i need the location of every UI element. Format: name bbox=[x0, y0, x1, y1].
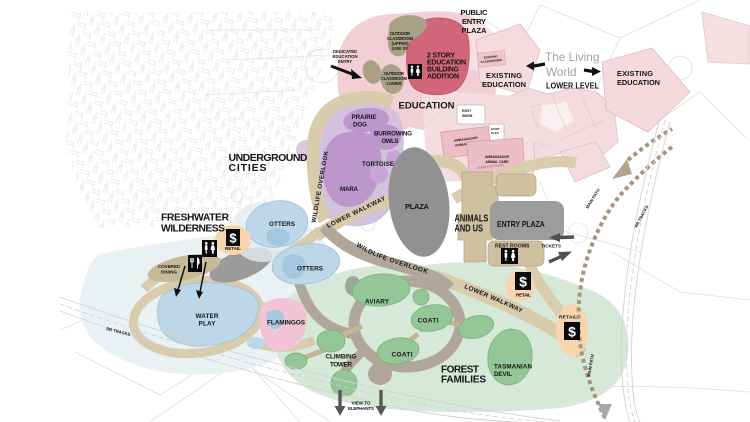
svg-text:DOG: DOG bbox=[353, 122, 367, 129]
svg-text:2000 SF: 2000 SF bbox=[392, 46, 408, 51]
svg-text:PUBLIC: PUBLIC bbox=[461, 8, 489, 17]
svg-text:RETAIL: RETAIL bbox=[225, 246, 241, 252]
svg-text:CLIMBING: CLIMBING bbox=[326, 354, 357, 361]
svg-text:WKRM: WKRM bbox=[462, 114, 473, 118]
svg-text:PRAIRIE: PRAIRIE bbox=[352, 114, 377, 121]
svg-text:PLAY: PLAY bbox=[199, 321, 217, 328]
svg-text:OTTERS: OTTERS bbox=[297, 266, 324, 273]
svg-text:DEVIL: DEVIL bbox=[494, 371, 512, 378]
svg-text:$: $ bbox=[568, 324, 576, 340]
svg-text:BUILDING: BUILDING bbox=[427, 67, 460, 74]
svg-text:MARA: MARA bbox=[340, 186, 359, 193]
svg-text:FRESHWATER: FRESHWATER bbox=[161, 213, 230, 224]
svg-text:COVERED: COVERED bbox=[158, 264, 181, 269]
svg-text:FLAMINGOS: FLAMINGOS bbox=[267, 320, 306, 327]
svg-text:ELEPHANTS: ELEPHANTS bbox=[348, 406, 374, 411]
svg-text:RETAIL: RETAIL bbox=[516, 293, 531, 299]
svg-text:DINING: DINING bbox=[161, 270, 177, 275]
svg-text:EXISTING: EXISTING bbox=[486, 71, 522, 80]
svg-text:TICKETS: TICKETS bbox=[541, 244, 561, 249]
svg-text:ENTRY PLAZA: ENTRY PLAZA bbox=[497, 219, 545, 229]
svg-text:ENTRY: ENTRY bbox=[462, 17, 486, 26]
svg-text:BURROWING: BURROWING bbox=[374, 131, 412, 138]
svg-text:LOWER: LOWER bbox=[387, 81, 402, 86]
svg-text:FAMILIES: FAMILIES bbox=[441, 375, 486, 386]
svg-text:ELEC: ELEC bbox=[491, 131, 500, 135]
svg-text:TASMANIAN: TASMANIAN bbox=[494, 364, 533, 371]
svg-text:RETAIL: RETAIL bbox=[559, 315, 577, 321]
svg-text:$: $ bbox=[519, 274, 527, 290]
svg-text:OTTERS: OTTERS bbox=[269, 221, 296, 228]
svg-text:ENTRY: ENTRY bbox=[338, 59, 352, 64]
svg-text:EDUCATION: EDUCATION bbox=[617, 78, 660, 87]
svg-text:2 STORY: 2 STORY bbox=[427, 53, 455, 60]
svg-text:EXISTING: EXISTING bbox=[617, 69, 653, 78]
svg-text:WILDERNESS: WILDERNESS bbox=[161, 224, 225, 235]
svg-text:AND US: AND US bbox=[455, 222, 484, 233]
svg-text:EDUCATION: EDUCATION bbox=[427, 60, 466, 67]
svg-text:OWLS: OWLS bbox=[382, 138, 399, 145]
svg-text:AMBASSADOR: AMBASSADOR bbox=[485, 155, 510, 159]
svg-text:COATI: COATI bbox=[392, 352, 413, 359]
svg-text:EXIST: EXIST bbox=[462, 109, 471, 113]
svg-text:PLAZA: PLAZA bbox=[462, 26, 488, 35]
svg-text:VIEW TO: VIEW TO bbox=[352, 401, 371, 406]
svg-text:REST ROOMS: REST ROOMS bbox=[495, 243, 530, 249]
svg-text:WATER: WATER bbox=[196, 313, 219, 320]
svg-text:EDUCATION: EDUCATION bbox=[482, 80, 526, 89]
svg-text:World: World bbox=[546, 65, 577, 79]
svg-text:AVIARY: AVIARY bbox=[365, 299, 390, 306]
svg-text:CITIES: CITIES bbox=[229, 162, 267, 174]
svg-text:The Living: The Living bbox=[545, 50, 599, 64]
svg-text:EDUCATION: EDUCATION bbox=[399, 101, 455, 112]
svg-text:TOWER: TOWER bbox=[330, 362, 352, 369]
svg-text:PLAZA: PLAZA bbox=[405, 202, 430, 211]
svg-text:$: $ bbox=[229, 231, 237, 246]
svg-text:COATI: COATI bbox=[418, 318, 439, 325]
svg-text:TORTOISE: TORTOISE bbox=[362, 161, 394, 168]
svg-text:LOWER LEVEL: LOWER LEVEL bbox=[546, 81, 599, 90]
svg-text:ADDITION: ADDITION bbox=[427, 74, 459, 81]
